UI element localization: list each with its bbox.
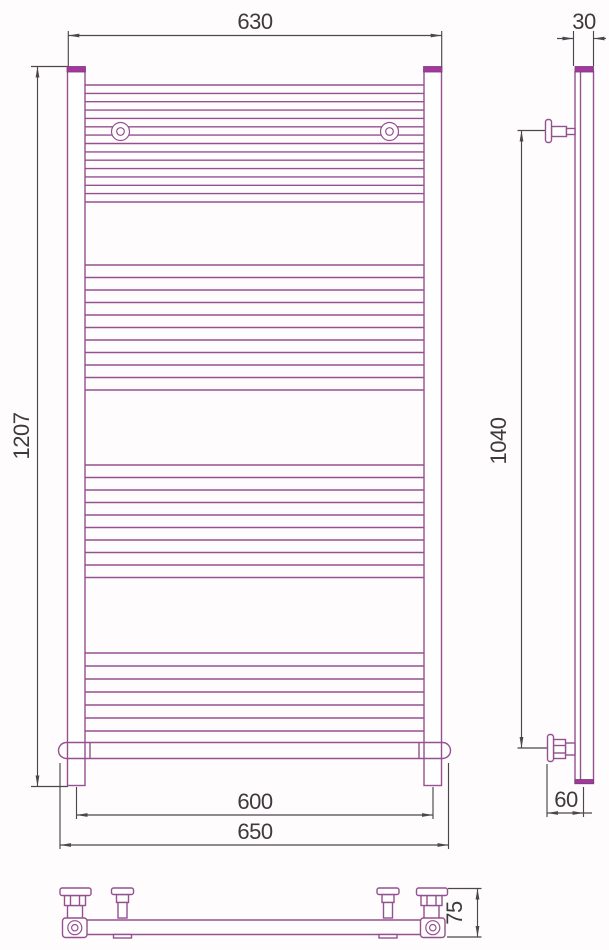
dim-630-label: 630 [237,9,272,34]
top-bracket-flange [546,120,552,143]
left-bracket-circle-inner [117,128,125,136]
right-bracket-pad [379,935,397,939]
left-valve-flange [60,888,91,896]
side-view [546,67,594,784]
drawing-canvas: 630 30 1207 1040 [0,0,609,950]
right-valve-port-inner [430,925,436,931]
left-valve-port-inner [72,925,78,931]
dim-30-label: 30 [572,9,596,34]
right-valve-flange [417,888,448,896]
technical-drawing-svg: 630 30 1207 1040 [0,0,609,950]
left-bottom-bracket [112,888,134,938]
right-valve-nut [421,896,442,906]
bottom-bracket-nut [554,740,566,759]
dim-75-label: 75 [442,901,467,925]
front-view [59,67,451,786]
side-bottom-bracket [548,735,576,762]
dim-1040-label: 1040 [486,417,511,464]
rung-group-4 [85,653,424,731]
right-bracket-stem-upper [382,895,394,903]
front-left-post [68,72,86,786]
dim-30: 30 [557,9,606,66]
rung-group-3 [85,465,424,578]
left-bracket-stem-lower [118,903,127,919]
right-bracket-stem-lower [384,903,393,919]
side-tube-bottom-cap [575,780,594,784]
side-tube-top-cap [575,67,594,73]
rung-group-2 [85,265,424,390]
left-bracket-plate [112,888,134,895]
dim-600: 600 [77,787,434,819]
right-bracket-plate [377,888,399,895]
left-valve [60,888,91,938]
dimension-annotations: 630 30 1207 1040 [9,9,606,937]
top-bracket-stem [552,127,567,137]
rung-group-1 [85,85,424,202]
dim-600-label: 600 [237,789,272,814]
top-bracket-collar [567,129,576,135]
dim-75: 75 [442,889,482,938]
bottom-collector [59,743,451,759]
right-valve-body [424,906,439,919]
right-bottom-bracket [377,888,399,938]
dim-1207-label: 1207 [9,412,34,459]
left-valve-body [68,906,83,919]
bottom-bracket-flange [548,735,554,762]
front-right-post-cap [424,67,443,73]
bottom-bracket-collar [566,743,576,755]
bottom-view [60,888,448,938]
left-bracket-stem-upper [117,895,129,903]
dim-60-label: 60 [554,787,578,812]
front-right-post [424,72,442,786]
left-bracket-pad [114,935,132,939]
dim-1207: 1207 [9,67,69,787]
side-tube [575,72,594,784]
left-valve-nut [65,896,86,906]
front-mount-brackets [112,123,399,141]
dim-630: 630 [68,9,441,69]
front-left-post-cap [67,67,86,73]
dim-1040: 1040 [486,131,548,749]
right-bracket-circle-inner [386,128,394,136]
dim-650-label: 650 [237,819,272,844]
side-top-bracket [546,120,576,143]
